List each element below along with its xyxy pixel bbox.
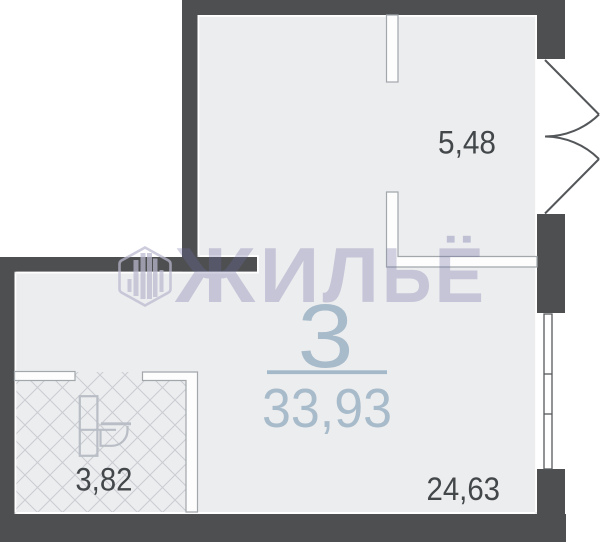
svg-text:24,63: 24,63	[427, 471, 501, 507]
svg-text:Ж: Ж	[174, 231, 256, 319]
svg-text:3,82: 3,82	[75, 462, 132, 498]
svg-text:5,48: 5,48	[438, 124, 496, 160]
svg-text:Е: Е	[435, 231, 485, 319]
svg-text:И: И	[260, 231, 320, 319]
svg-text:Ь: Ь	[382, 231, 432, 319]
svg-text:33,93: 33,93	[262, 377, 392, 439]
svg-text:Л: Л	[323, 231, 380, 319]
